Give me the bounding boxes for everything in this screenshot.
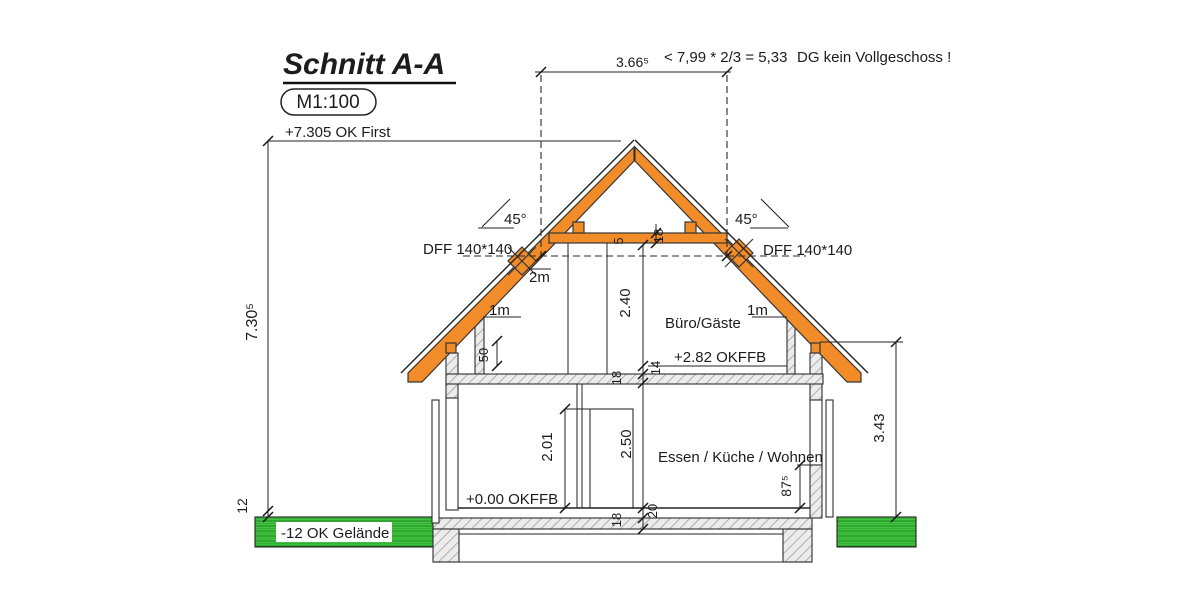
dim-attic-slab: 18 [609,371,624,385]
height-1m-label-right: 1m [747,302,768,319]
formula-label: < 7,99 * 2/3 = 5,33 [664,49,787,66]
dim-attic-screed: 14 [648,361,663,375]
section-drawing: Schnitt A-A M1:100 +7.305 OK First 3.66⁵… [0,0,1200,600]
note-dg-label: DG kein Vollgeschoss ! [797,49,951,66]
wall-right-parapet [810,465,822,518]
dim-total-height: 7.30⁵ [244,303,261,341]
dim-terrain-offset: 12 [234,498,250,514]
scale-label: M1:100 [296,92,359,113]
dim-collar-beam: 18 [651,229,666,243]
dim-attic-height: 2.40 [617,288,634,317]
room-label-ground: Essen / Küche / Wohnen [658,449,823,466]
level-label-attic: +2.82 OKFFB [674,349,766,366]
angle-label-left: 45° [504,211,527,228]
dim-knee-wall: 50 [476,348,491,362]
wall-plate-left [446,343,456,353]
angle-mark-right [761,199,789,227]
dim-ground-screed: 20 [645,504,660,518]
dim-eaves-height: 3.43 [871,413,888,442]
section-drawing-canvas: Schnitt A-A M1:100 +7.305 OK First 3.66⁵… [0,0,1200,600]
height-1m-label-left: 1m [489,302,510,319]
rafter-right [635,147,861,382]
dff-label-left: DFF 140*140 [423,241,512,258]
attic-slab [446,374,823,384]
collar-beam [549,233,727,243]
wall-right-cladding [826,400,833,517]
wall-plate-right [811,343,820,353]
height-2m-label: 2m [529,269,550,286]
drawing-title: Schnitt A-A [283,48,445,81]
wall-left-cladding [432,400,439,523]
room-label-attic: Büro/Gäste [665,315,741,332]
angle-label-right: 45° [735,211,758,228]
dim-ground-height: 2.50 [618,429,635,458]
collar-post-left [573,222,584,233]
dim-door-height: 2.01 [539,432,556,461]
dff-label-right: DFF 140*140 [763,242,852,259]
construction-lines [463,75,806,256]
wall-left-opening [446,398,458,510]
level-label-terrain: -12 OK Gelände [281,525,389,542]
foundation-right [783,529,812,562]
collar-post-right [685,222,696,233]
terrain-strip-right [837,517,916,547]
foundation-left [433,529,459,562]
dim-parapet: 87⁵ [778,475,794,496]
knee-wall-left [475,318,484,374]
dim-collar-gap: 5 [611,237,626,244]
dim-ground-slab: 18 [609,513,624,527]
level-label-ground: +0.00 OKFFB [466,491,558,508]
ridge-level-label: +7.305 OK First [285,124,391,141]
dim-top-width: 3.66⁵ [616,54,649,70]
